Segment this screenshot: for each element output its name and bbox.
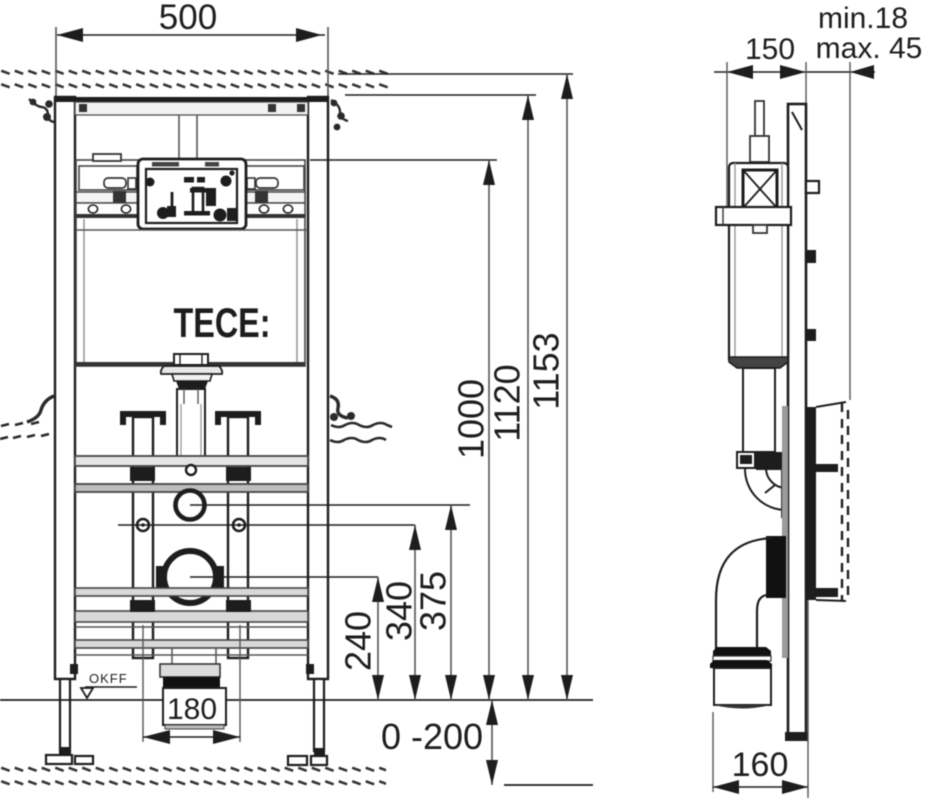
svg-text:500: 500 bbox=[159, 0, 217, 37]
svg-text:180: 180 bbox=[167, 693, 217, 726]
svg-text:160: 160 bbox=[732, 746, 789, 784]
svg-text:min.18: min.18 bbox=[818, 2, 908, 35]
svg-text:1120: 1120 bbox=[487, 364, 528, 441]
svg-text:OKFF: OKFF bbox=[89, 671, 128, 686]
svg-text:1153: 1153 bbox=[526, 332, 567, 409]
svg-text:0 -200: 0 -200 bbox=[381, 716, 483, 757]
svg-text:150: 150 bbox=[745, 33, 795, 66]
svg-text:240: 240 bbox=[338, 611, 379, 671]
svg-text:max. 45: max. 45 bbox=[816, 32, 923, 65]
svg-text:375: 375 bbox=[413, 571, 454, 631]
svg-text:1000: 1000 bbox=[451, 379, 492, 459]
svg-text:TECE:: TECE: bbox=[174, 299, 271, 346]
